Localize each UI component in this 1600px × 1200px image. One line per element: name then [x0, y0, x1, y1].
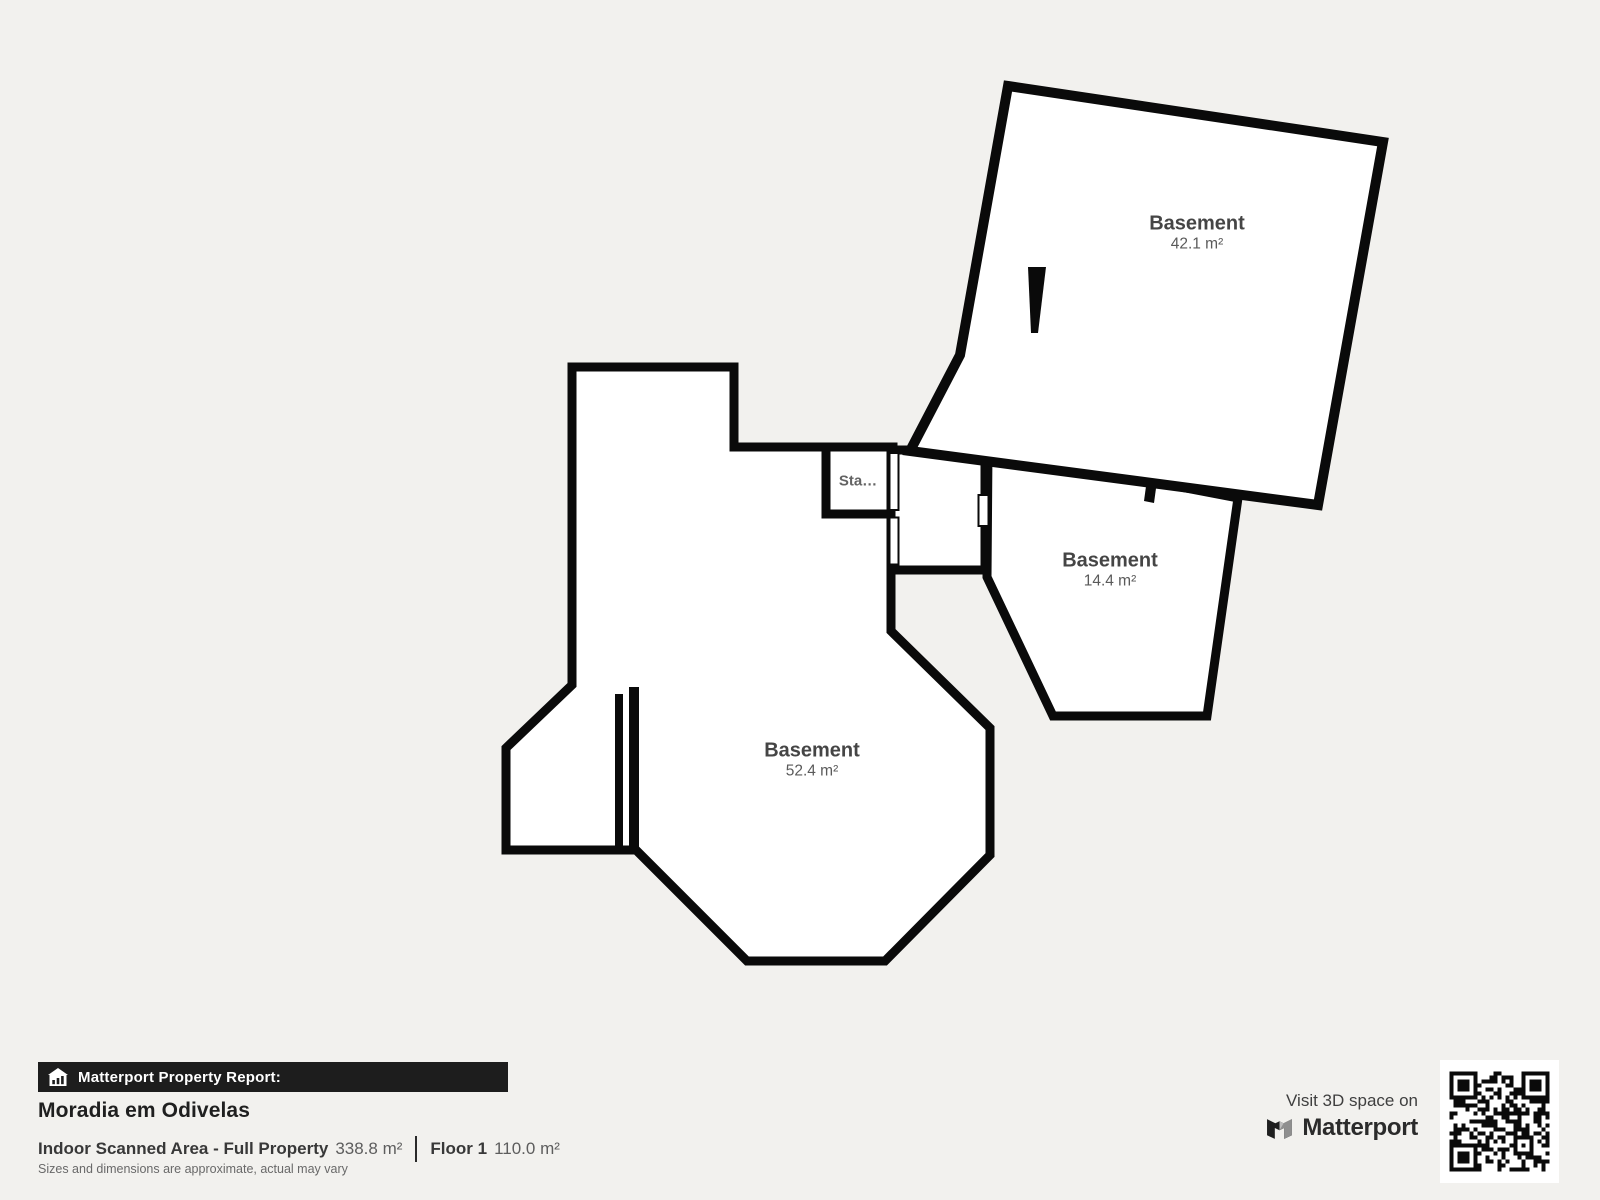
floor-label: Floor 1: [430, 1139, 487, 1159]
window-room14-left: [979, 495, 989, 526]
info-divider: [415, 1136, 417, 1162]
window-stairs-lower: [890, 518, 899, 565]
matterport-logo-icon: [1266, 1115, 1293, 1142]
qr-code-pattern: [1440, 1060, 1559, 1183]
vestibule-outline: [891, 450, 985, 570]
house-report-icon: [48, 1068, 68, 1086]
area-info-line: Indoor Scanned Area - Full Property 338.…: [38, 1134, 560, 1164]
scanned-area-label: Indoor Scanned Area - Full Property: [38, 1139, 328, 1159]
matterport-wordmark: Matterport: [1302, 1114, 1418, 1142]
report-banner-label: Matterport Property Report:: [78, 1069, 281, 1086]
floor-value: 110.0 m²: [494, 1139, 560, 1159]
property-name: Moradia em Odivelas: [38, 1099, 250, 1123]
matterport-brand-row: Matterport: [1266, 1113, 1418, 1143]
qr-code: [1440, 1060, 1559, 1183]
disclaimer-text: Sizes and dimensions are approximate, ac…: [38, 1162, 348, 1176]
visit-3d-text: Visit 3D space on: [1286, 1091, 1418, 1111]
scanned-area-value: 338.8 m²: [335, 1139, 402, 1159]
window-stairs-upper: [890, 453, 899, 510]
floorplan-drawing: [0, 0, 1600, 1200]
floorplan-page: Basement 42.1 m² Basement 14.4 m² Baseme…: [0, 0, 1600, 1200]
report-banner: Matterport Property Report:: [38, 1062, 508, 1092]
interior-wall-octagon: [629, 687, 639, 851]
room-basement-42-outline: [910, 86, 1383, 505]
room-label-stairs: Sta…: [839, 473, 877, 490]
interior-wall-extension: [615, 694, 623, 850]
